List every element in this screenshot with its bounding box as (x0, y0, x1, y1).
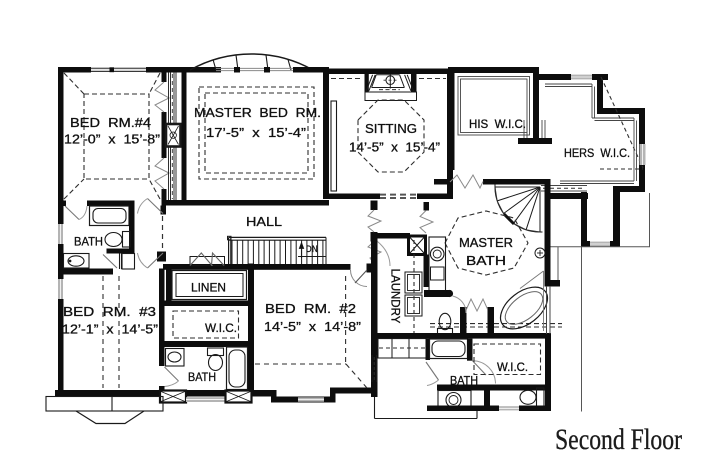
svg-text:HERS W.I.C.: HERS W.I.C. (564, 146, 630, 160)
svg-text:12’-1” x 14’-5”: 12’-1” x 14’-5” (62, 323, 158, 337)
svg-text:LAUNDRY: LAUNDRY (389, 269, 401, 324)
svg-text:W.I.C.: W.I.C. (497, 362, 528, 374)
svg-text:SITTING: SITTING (365, 122, 417, 136)
svg-text:MASTER BED RM.: MASTER BED RM. (194, 106, 321, 120)
svg-text:BED RM. #2: BED RM. #2 (265, 301, 356, 316)
svg-text:HIS W.I.C.: HIS W.I.C. (469, 117, 526, 131)
svg-text:BATH: BATH (466, 254, 506, 268)
svg-text:HALL: HALL (246, 215, 282, 229)
svg-text:14’-5” x 15’-4”: 14’-5” x 15’-4” (349, 141, 440, 155)
svg-text:W.I.C.: W.I.C. (205, 321, 237, 335)
svg-text:BED RM. #3: BED RM. #3 (63, 305, 156, 319)
svg-text:12’-0” x 15’-8”: 12’-0” x 15’-8” (64, 133, 160, 147)
svg-text:Second Floor: Second Floor (555, 424, 682, 456)
svg-text:BATH: BATH (74, 235, 103, 249)
svg-text:BATH: BATH (188, 370, 216, 384)
svg-text:DN: DN (306, 244, 318, 255)
svg-text:14’-5” x 14’-8”: 14’-5” x 14’-8” (264, 319, 361, 334)
svg-text:LINEN: LINEN (191, 281, 226, 295)
svg-text:17’-5” x 15’-4”: 17’-5” x 15’-4” (206, 126, 306, 140)
svg-text:MASTER: MASTER (459, 236, 513, 250)
svg-text:BED RM.#4: BED RM.#4 (70, 116, 151, 130)
